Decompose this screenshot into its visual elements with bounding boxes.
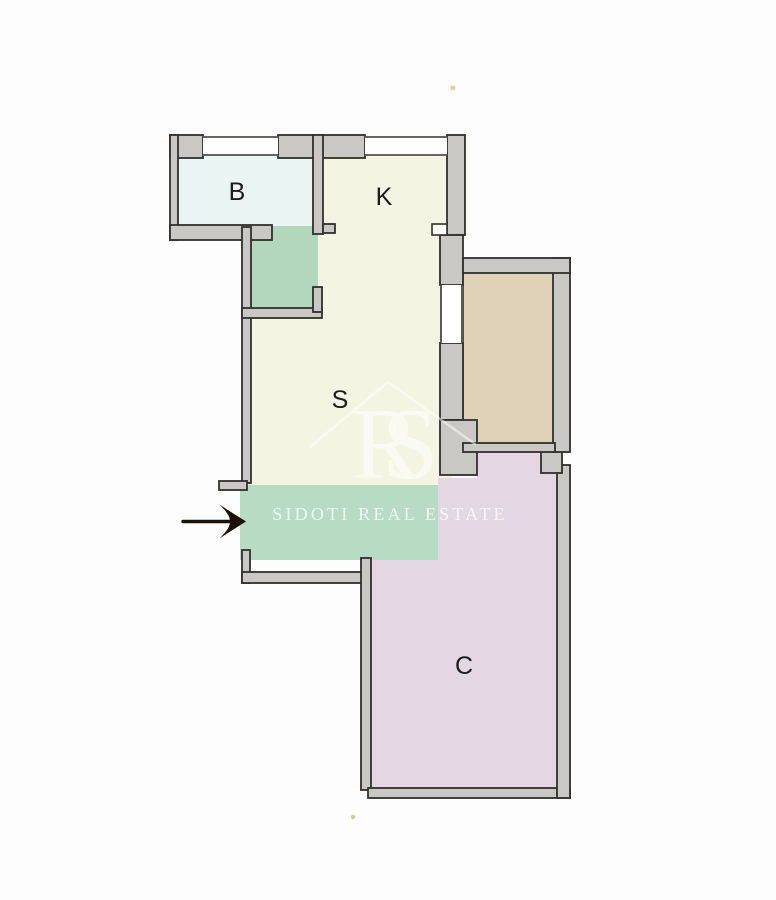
wall-c-right — [557, 465, 570, 798]
speck-bottom — [351, 815, 355, 819]
balcony-fill — [463, 272, 555, 444]
label-room-b: B — [229, 178, 246, 206]
wall-b-bottom — [170, 225, 272, 240]
door-jamb-notch — [432, 224, 447, 235]
window-balcony — [440, 285, 463, 343]
label-room-c: C — [455, 652, 473, 680]
wall-k-right-upper — [447, 135, 465, 235]
wall-entry-stub-top — [219, 481, 247, 490]
speck-top — [451, 86, 456, 91]
wall-closet-bottom — [242, 308, 322, 318]
wall-balcony-right — [553, 258, 570, 452]
wall-k-right-mid — [440, 235, 463, 285]
wall-c-left — [361, 558, 371, 790]
label-room-s: S — [332, 386, 349, 414]
label-room-k: K — [376, 183, 393, 211]
wall-left-column — [242, 227, 251, 483]
wall-k-right-lower — [440, 343, 463, 420]
wall-balcony-bottom — [463, 443, 555, 452]
wall-c-bottom — [368, 788, 570, 798]
wall-balcony-top — [463, 258, 570, 273]
watermark-brand-text: SIDOTI REAL ESTATE — [272, 504, 507, 524]
floorplan-svg: B K S C RS SIDOTI REAL ESTATE — [0, 0, 776, 900]
window-kitchen — [365, 136, 447, 156]
wall-s-bottom — [242, 572, 368, 583]
window-bathroom — [203, 136, 278, 156]
wall-b-k-divider — [313, 135, 323, 234]
wall-divider-foot — [323, 224, 335, 233]
wall-closet-right-stub — [313, 287, 322, 312]
floorplan-image: B K S C RS SIDOTI REAL ESTATE — [0, 0, 776, 900]
